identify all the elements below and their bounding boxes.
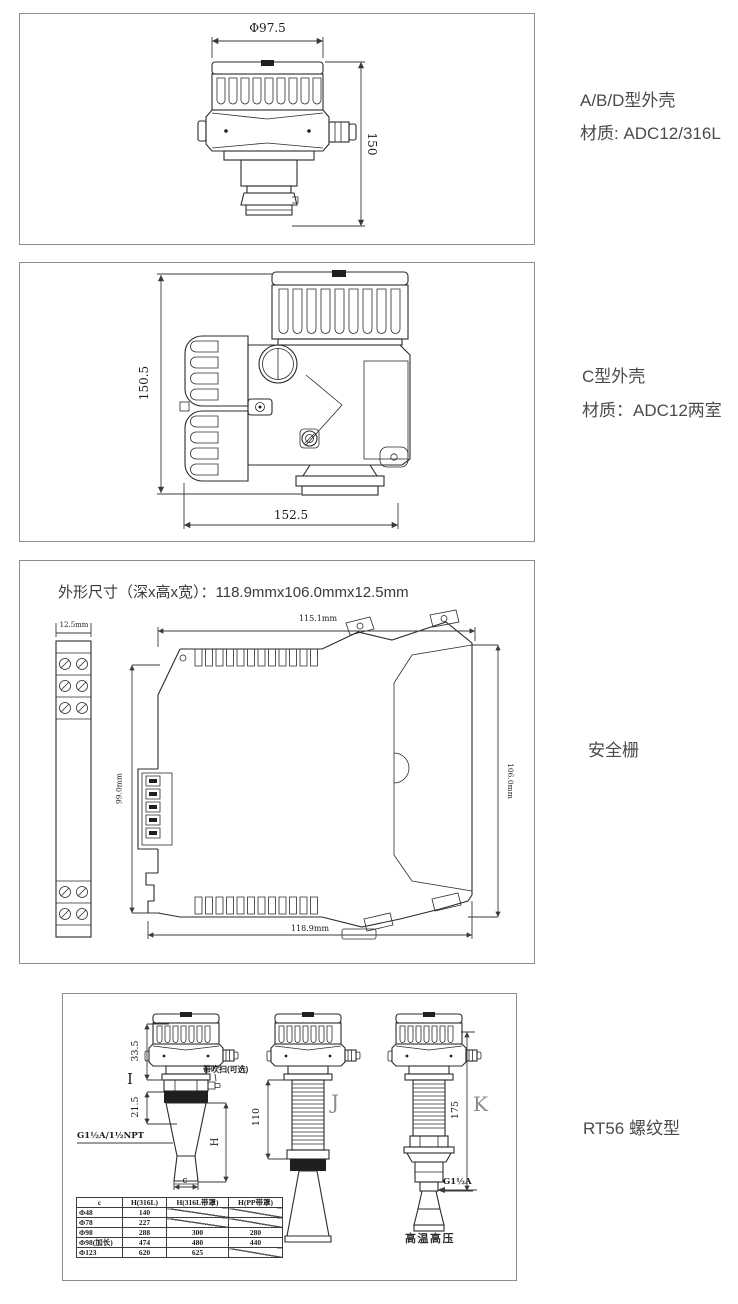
table-header-cell: c	[77, 1198, 123, 1208]
table-cell: 300	[167, 1228, 229, 1238]
table-cell: Φ98	[77, 1228, 123, 1238]
dim-barrier-right: 106.0mm	[503, 758, 515, 804]
dim-abd-width: Φ97.5	[212, 21, 323, 35]
variant-k-letter: K	[473, 1092, 488, 1116]
table-cell: 620	[123, 1248, 167, 1258]
table-cell: 480	[167, 1238, 229, 1248]
table-header-row: cH(316L)H(316L带罩)H(PP带罩)	[77, 1198, 283, 1208]
thread-label-i: G1½A/1½NPT	[77, 1131, 177, 1141]
table-row: Φ98288300280	[77, 1228, 283, 1238]
panel-safety-barrier: 外形尺寸（深x高x宽）：118.9mmx106.0mmx12.5mm 12.5m…	[19, 560, 535, 964]
dim-i-c: c	[175, 1176, 195, 1186]
table-head: cH(316L)H(316L带罩)H(PP带罩)	[77, 1198, 283, 1208]
barrier-dimensions-title: 外形尺寸（深x高x宽）：118.9mmx106.0mmx12.5mm	[58, 581, 409, 602]
dim-k: 175	[450, 1092, 462, 1128]
dim-barrier-module-width: 12.5mm	[44, 621, 104, 629]
table-cell	[229, 1218, 283, 1228]
table-cell: 288	[123, 1228, 167, 1238]
table-body: Φ48140Φ78227Φ98288300280Φ98(加长)474480440…	[77, 1208, 283, 1258]
variant-i-letter: I	[123, 1070, 137, 1088]
panel-rt56: 33.5 I 21.5 带吹扫(可选) G1½A/1½NPT H c 110 J…	[62, 993, 517, 1281]
datasheet-page: Φ97.5 150	[0, 0, 738, 1304]
dim-barrier-top: 115.1mm	[275, 614, 361, 623]
dim-abd-height: 150	[365, 126, 379, 162]
abd-housing-drawing	[20, 14, 532, 242]
table-cell: 227	[123, 1218, 167, 1228]
table-cell	[229, 1248, 283, 1258]
purge-note: 带吹扫(可选)	[203, 1064, 267, 1075]
variant-k-caption: 高温高压	[387, 1230, 473, 1246]
label-c-housing-material: 材质：ADC12两室	[582, 396, 722, 421]
variant-j-letter: J	[331, 1090, 339, 1114]
dim-i-lower: 21.5	[130, 1091, 142, 1123]
label-safety-barrier: 安全栅	[588, 736, 639, 761]
table-cell: 625	[167, 1248, 229, 1258]
table-cell	[229, 1208, 283, 1218]
label-abd-housing: A/B/D型外壳	[580, 86, 675, 111]
table-cell	[167, 1218, 229, 1228]
antenna-height-table: cH(316L)H(316L带罩)H(PP带罩) Φ48140Φ78227Φ98…	[76, 1197, 283, 1258]
label-c-housing: C型外壳	[582, 362, 645, 387]
panel-c-housing: 150.5 152.5	[19, 262, 535, 542]
table-cell: 140	[123, 1208, 167, 1218]
dim-c-width: 152.5	[261, 508, 321, 522]
table-cell	[167, 1208, 229, 1218]
dim-barrier-left: 99.0mm	[115, 767, 126, 811]
table-cell: 474	[123, 1238, 167, 1248]
table-cell: Φ98(加长)	[77, 1238, 123, 1248]
table-cell: 280	[229, 1228, 283, 1238]
table-row: Φ78227	[77, 1218, 283, 1228]
table-row: Φ123620625	[77, 1248, 283, 1258]
dim-c-height: 150.5	[137, 361, 151, 405]
table-row: Φ48140	[77, 1208, 283, 1218]
table-row: Φ98(加长)474480440	[77, 1238, 283, 1248]
table-cell: Φ123	[77, 1248, 123, 1258]
table-cell: Φ78	[77, 1218, 123, 1228]
table-header-cell: H(316L带罩)	[167, 1198, 229, 1208]
table-header-cell: H(316L)	[123, 1198, 167, 1208]
label-abd-housing-material: 材质: ADC12/316L	[580, 119, 721, 144]
table-header-cell: H(PP带罩)	[229, 1198, 283, 1208]
dim-i-h: H	[210, 1132, 222, 1152]
c-housing-drawing	[20, 263, 532, 539]
panel-abd-housing: Φ97.5 150	[19, 13, 535, 245]
dim-j: 110	[251, 1099, 263, 1135]
table-cell: Φ48	[77, 1208, 123, 1218]
dim-i-upper: 33.5	[130, 1035, 142, 1067]
dim-barrier-bottom: 118.9mm	[270, 924, 350, 933]
label-rt56: RT56 螺纹型	[583, 1114, 680, 1139]
thread-label-k: G1½A	[443, 1177, 487, 1187]
table-cell: 440	[229, 1238, 283, 1248]
